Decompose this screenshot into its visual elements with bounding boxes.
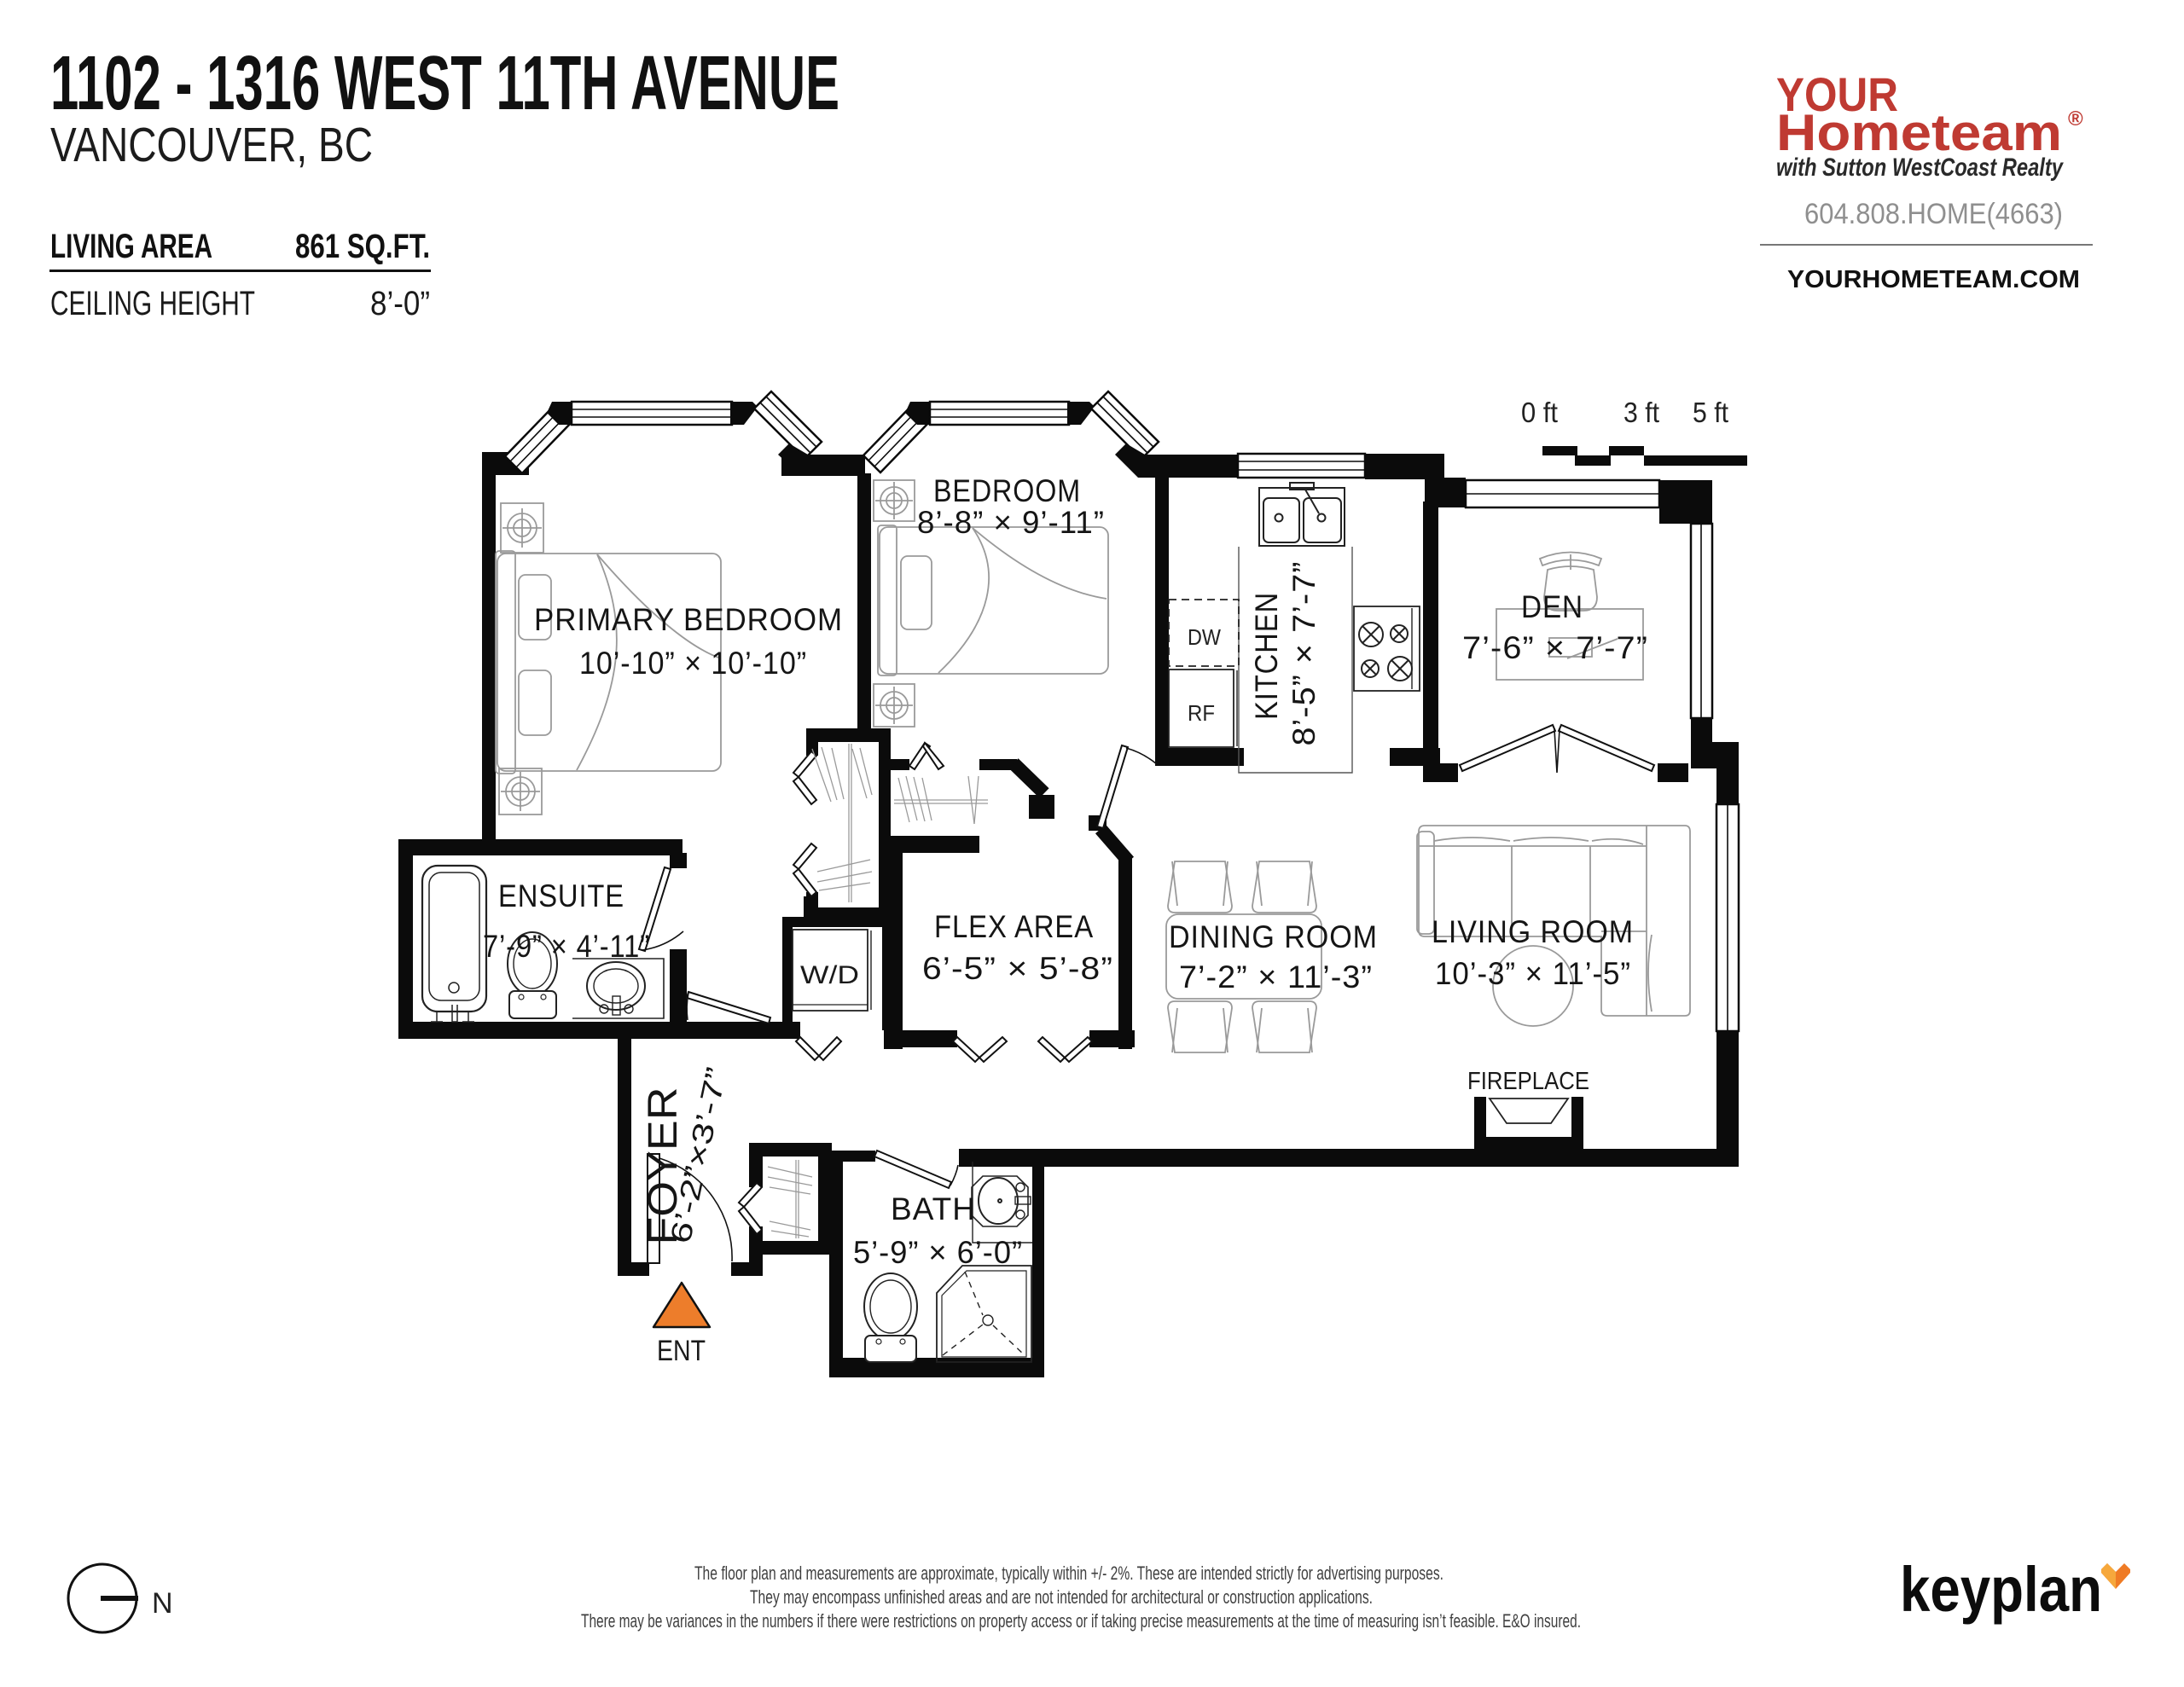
svg-text:FIREPLACE: FIREPLACE — [1467, 1068, 1589, 1095]
svg-text:KITCHEN: KITCHEN — [1249, 592, 1284, 720]
svg-text:W/D: W/D — [800, 961, 859, 989]
svg-text:1102 - 1316 WEST 11TH AVENUE: 1102 - 1316 WEST 11TH AVENUE — [50, 41, 839, 126]
svg-text:RF: RF — [1188, 700, 1215, 726]
svg-text:VANCOUVER, BC: VANCOUVER, BC — [50, 118, 373, 172]
svg-text:N: N — [152, 1587, 173, 1620]
svg-text:PRIMARY BEDROOM: PRIMARY BEDROOM — [534, 602, 843, 637]
svg-text:0 ft: 0 ft — [1521, 397, 1558, 428]
svg-text:10’-3” × 11’-5”: 10’-3” × 11’-5” — [1435, 956, 1631, 991]
svg-text:8’-0”: 8’-0” — [370, 285, 430, 322]
svg-text:7’-2” × 11’-3”: 7’-2” × 11’-3” — [1179, 959, 1373, 994]
svg-text:LIVING AREA: LIVING AREA — [50, 228, 212, 265]
svg-text:5’-9” × 6’-0”: 5’-9” × 6’-0” — [853, 1235, 1023, 1270]
svg-text:BATH: BATH — [891, 1191, 976, 1226]
svg-text:Hometeam: Hometeam — [1776, 104, 2062, 161]
svg-text:604.808.HOME(4663): 604.808.HOME(4663) — [1804, 198, 2063, 230]
svg-text:7’-9” × 4’-11”: 7’-9” × 4’-11” — [483, 929, 650, 964]
svg-text:861 SQ.FT.: 861 SQ.FT. — [295, 228, 430, 265]
svg-text:DW: DW — [1188, 624, 1221, 650]
svg-text:They may encompass unfinished: They may encompass unfinished areas and … — [750, 1586, 1373, 1608]
svg-text:7’-6” × 7’-7”: 7’-6” × 7’-7” — [1462, 630, 1648, 665]
svg-text:10’-10” × 10’-10”: 10’-10” × 10’-10” — [579, 646, 807, 681]
svg-text:The floor plan and measurement: The floor plan and measurements are appr… — [694, 1562, 1443, 1584]
svg-text:5 ft: 5 ft — [1693, 397, 1728, 428]
svg-text:There may be variances in the: There may be variances in the numbers if… — [581, 1610, 1581, 1632]
svg-text:6’-5” × 5’-8”: 6’-5” × 5’-8” — [922, 951, 1113, 986]
svg-text:keyplan: keyplan — [1900, 1554, 2102, 1625]
svg-text:8’-5” × 7’-7”: 8’-5” × 7’-7” — [1287, 561, 1321, 746]
svg-text:BEDROOM: BEDROOM — [933, 473, 1081, 508]
svg-text:CEILING HEIGHT: CEILING HEIGHT — [50, 285, 255, 322]
svg-text:LIVING ROOM: LIVING ROOM — [1432, 914, 1634, 949]
svg-text:8’-8” × 9’-11”: 8’-8” × 9’-11” — [917, 505, 1105, 540]
svg-text:with Sutton WestCoast Realty: with Sutton WestCoast Realty — [1776, 154, 2064, 182]
svg-text:DINING ROOM: DINING ROOM — [1169, 919, 1378, 954]
svg-text:ENSUITE: ENSUITE — [498, 878, 624, 913]
svg-text:ENT: ENT — [657, 1335, 706, 1367]
svg-text:®: ® — [2068, 107, 2083, 130]
svg-text:DEN: DEN — [1521, 589, 1583, 624]
svg-text:YOURHOMETEAM.COM: YOURHOMETEAM.COM — [1787, 266, 2080, 293]
svg-text:FLEX AREA: FLEX AREA — [934, 909, 1094, 944]
svg-text:3 ft: 3 ft — [1623, 397, 1659, 428]
